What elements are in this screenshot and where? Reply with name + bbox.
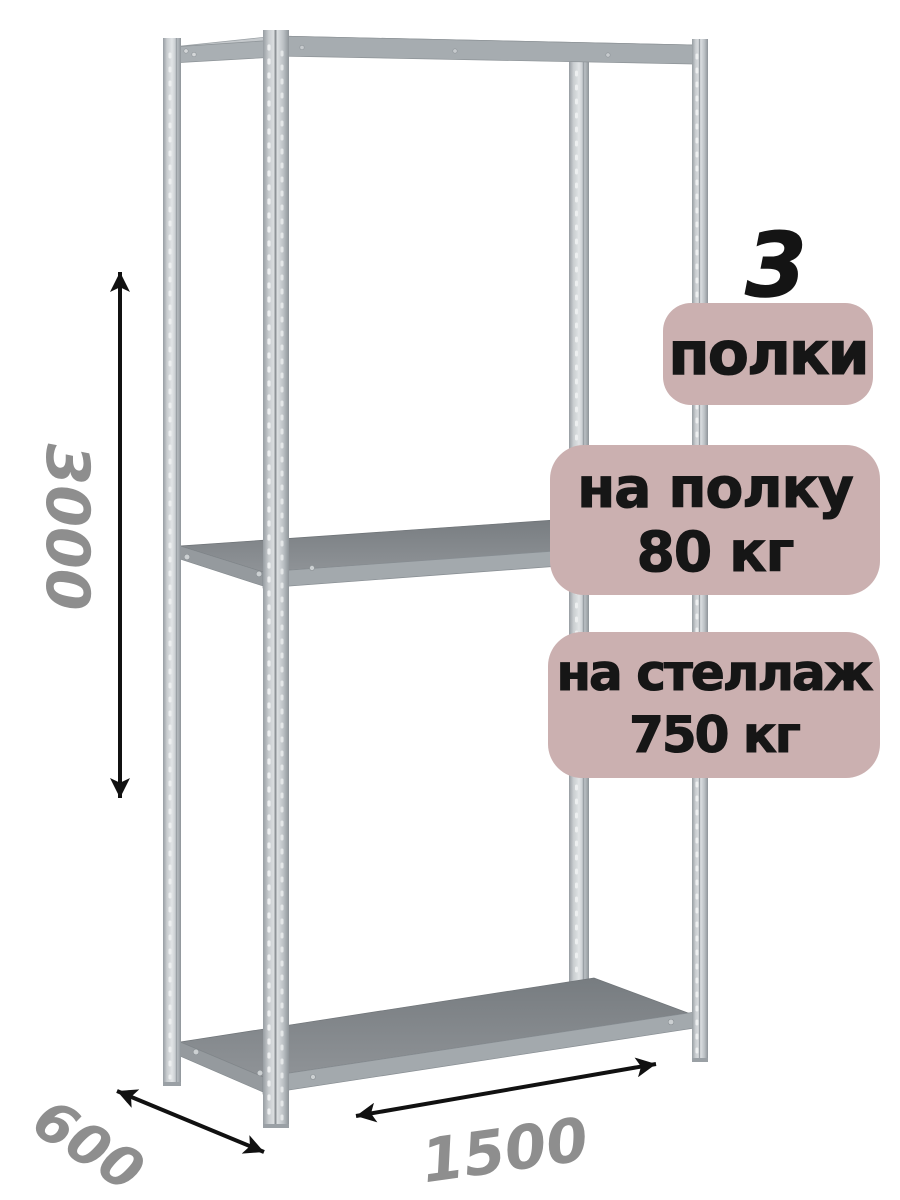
front-left-post xyxy=(263,30,289,1128)
height-dimension-label: 3000 xyxy=(32,444,102,611)
bottom-shelf xyxy=(180,978,695,1094)
rack-load-line2: 750 кг xyxy=(548,704,880,766)
back-left-post xyxy=(163,38,181,1086)
shelf-load-badge: на полку 80 кг xyxy=(550,445,880,595)
shelf-count-number: 3 xyxy=(745,222,806,310)
shelving-rack-illustration xyxy=(0,0,900,1200)
product-image: 3 полки на полку 80 кг на стеллаж 750 кг… xyxy=(0,0,900,1200)
shelf-load-line2: 80 кг xyxy=(550,520,880,584)
top-shelf xyxy=(172,36,693,64)
shelf-count-label: полки xyxy=(668,319,867,389)
shelf-count-badge: полки xyxy=(663,303,873,405)
rack-load-badge: на стеллаж 750 кг xyxy=(548,632,880,778)
shelf-load-line1: на полку xyxy=(550,456,880,520)
rack-load-line1: на стеллаж xyxy=(548,642,880,704)
